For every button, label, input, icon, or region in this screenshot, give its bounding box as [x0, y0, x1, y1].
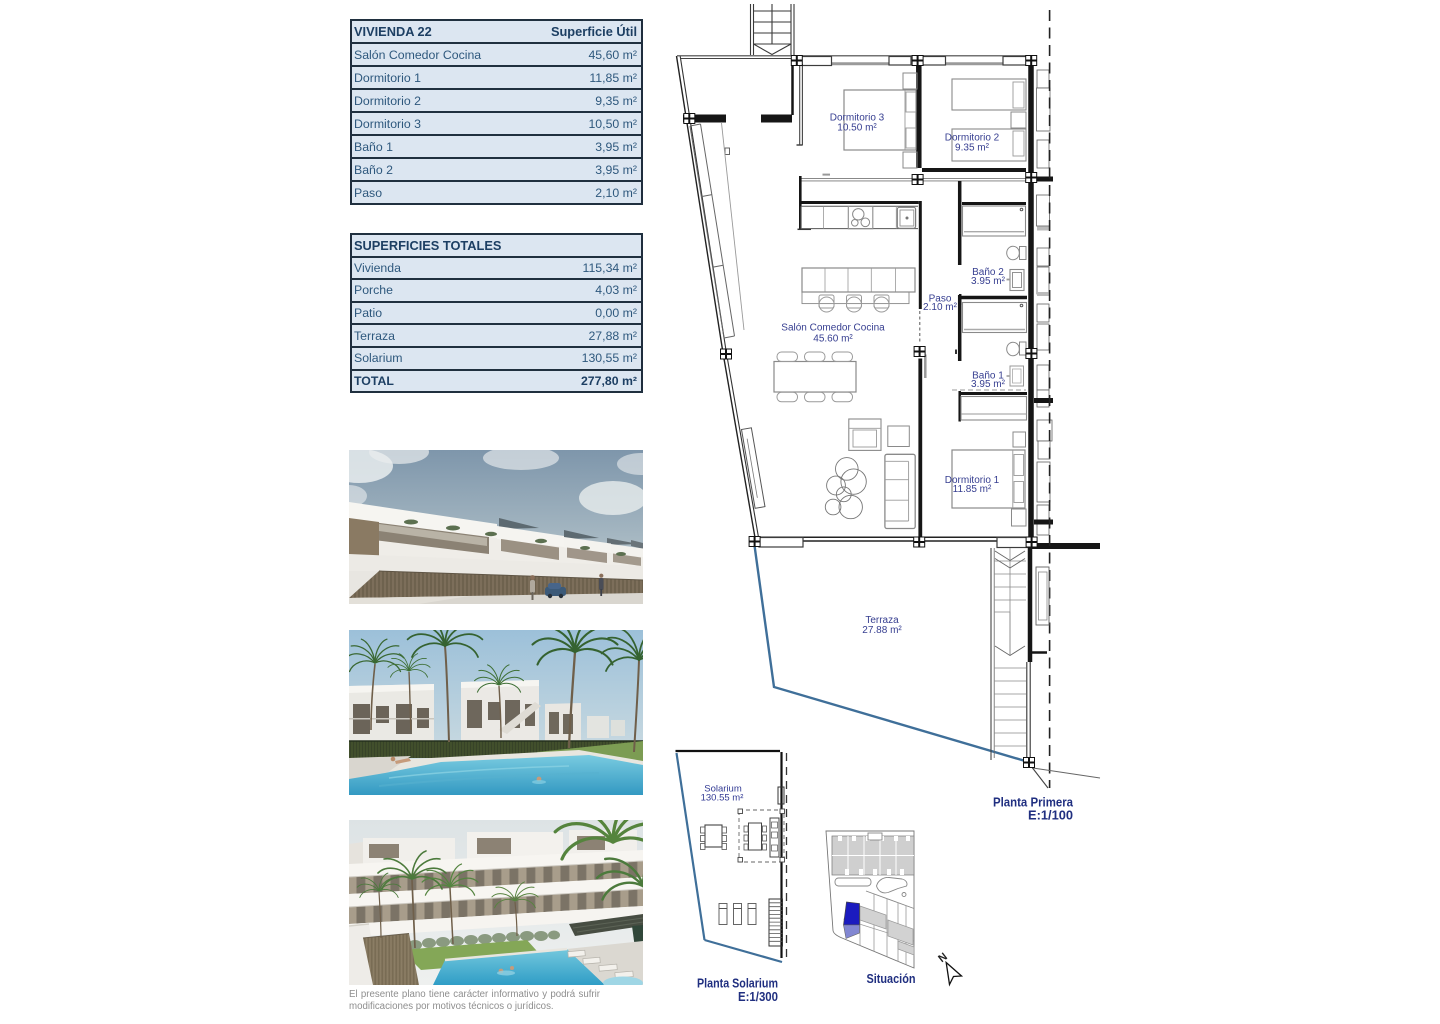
svg-text:E:1/100: E:1/100: [1028, 809, 1073, 823]
svg-text:3.95 m²: 3.95 m²: [971, 379, 1006, 390]
svg-text:Salón Comedor Cocina: Salón Comedor Cocina: [781, 323, 885, 334]
svg-text:E:1/300: E:1/300: [738, 990, 778, 1004]
svg-text:11.85 m²: 11.85 m²: [953, 484, 992, 495]
svg-text:2.10 m²: 2.10 m²: [923, 302, 958, 313]
svg-text:130.55 m²: 130.55 m²: [701, 793, 744, 804]
svg-text:N: N: [936, 951, 950, 965]
svg-text:Situación: Situación: [867, 972, 916, 986]
svg-text:9.35 m²: 9.35 m²: [955, 143, 990, 154]
svg-text:27.88 m²: 27.88 m²: [862, 625, 902, 636]
svg-text:45.60 m²: 45.60 m²: [813, 334, 853, 345]
svg-text:10.50 m²: 10.50 m²: [837, 122, 877, 133]
svg-text:Planta Primera: Planta Primera: [993, 796, 1074, 810]
svg-text:Planta Solarium: Planta Solarium: [697, 977, 778, 991]
svg-text:3.95 m²: 3.95 m²: [971, 276, 1006, 287]
